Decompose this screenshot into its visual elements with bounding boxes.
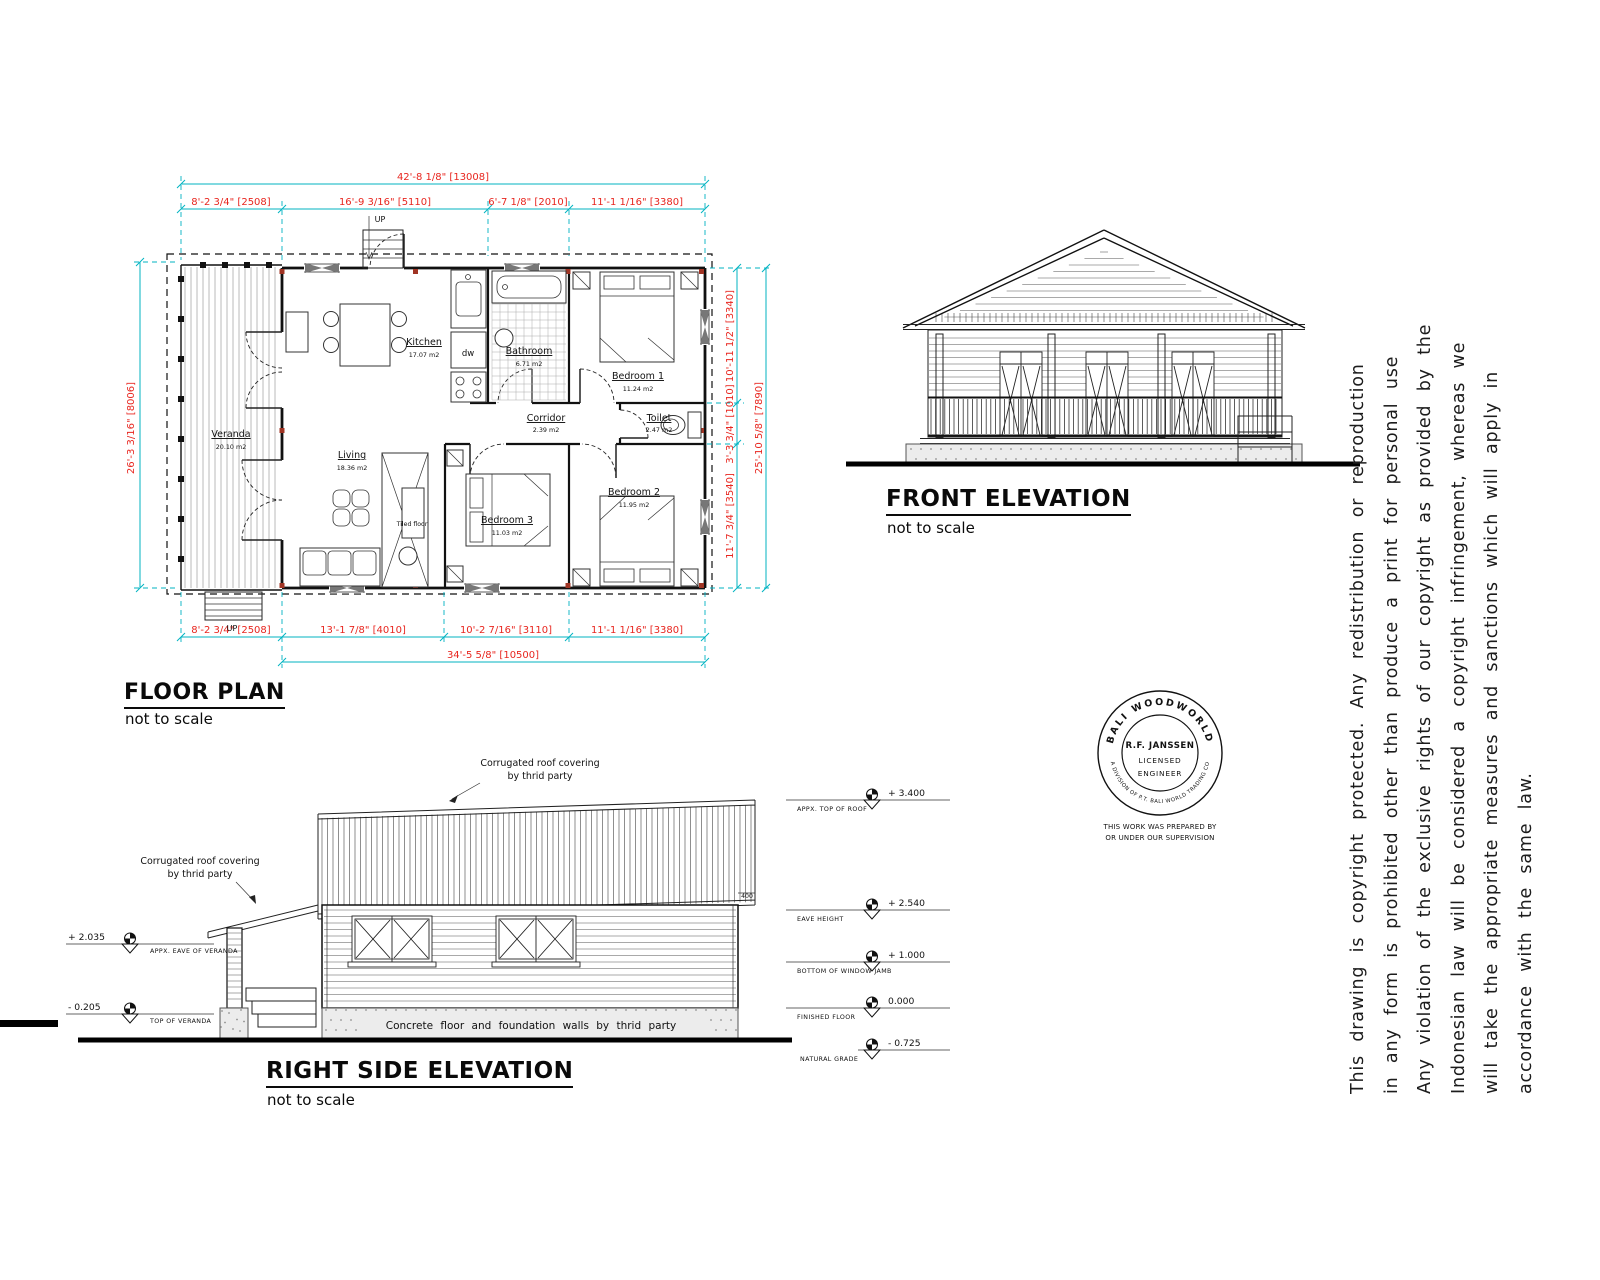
stipple-dot bbox=[415, 1009, 417, 1011]
stipple-dot bbox=[1135, 458, 1137, 460]
stipple-dot bbox=[940, 448, 942, 450]
chair bbox=[392, 312, 407, 327]
stipple-dot bbox=[1035, 458, 1037, 460]
stipple-dot bbox=[365, 1009, 367, 1011]
sofa bbox=[300, 548, 380, 586]
deco-line bbox=[872, 789, 878, 795]
deco-line bbox=[867, 905, 873, 911]
stipple-dot bbox=[1245, 458, 1247, 460]
stipple-dot bbox=[1040, 448, 1042, 450]
stamp-engineer: ENGINEER bbox=[1138, 769, 1183, 778]
stipple-dot bbox=[1075, 458, 1077, 460]
stipple-dot bbox=[525, 1009, 527, 1011]
level-value: - 0.725 bbox=[888, 1038, 921, 1049]
deco-line bbox=[125, 1009, 131, 1015]
stipple-dot bbox=[565, 1009, 567, 1011]
stamp-arc-bottom-text: A DIVISION OF P.T. BALI WORLD TRADING CO bbox=[1109, 761, 1211, 805]
roof-note-line2: by thrid party bbox=[507, 771, 572, 782]
eave-blocking bbox=[936, 313, 1272, 322]
stipple-dot bbox=[1010, 448, 1012, 450]
level-label: NATURAL GRADE bbox=[800, 1056, 858, 1063]
stipple-dot bbox=[224, 1022, 226, 1024]
stipple-dot bbox=[705, 1009, 707, 1011]
deco-line bbox=[867, 957, 873, 963]
stipple-dot bbox=[221, 1010, 223, 1012]
front-door-1 bbox=[1000, 352, 1042, 437]
stove bbox=[451, 372, 486, 402]
post-foundation bbox=[220, 1008, 248, 1038]
stipple-dot bbox=[325, 1009, 327, 1011]
veranda-post bbox=[227, 928, 242, 1008]
dim-top-seg3: 6'-7 1/8" [2010] bbox=[488, 197, 567, 208]
bathroom-fixtures bbox=[492, 271, 566, 400]
copyright-line: accordance with the same law. bbox=[1510, 319, 1544, 1094]
coffee-table bbox=[352, 490, 369, 507]
stipple-dot bbox=[1185, 458, 1187, 460]
stipple-dot bbox=[595, 1009, 597, 1011]
dim-top-overall: 42'-8 1/8" [13008] bbox=[397, 172, 489, 183]
stipple-dot bbox=[395, 1009, 397, 1011]
dim-top-seg1: 8'-2 3/4" [2508] bbox=[191, 197, 270, 208]
stipple-dot bbox=[1025, 458, 1027, 460]
room-living-area: 18.36 m2 bbox=[337, 464, 368, 472]
stipple-dot bbox=[980, 448, 982, 450]
stamp-note-line2: OR UNDER OUR SUPERVISION bbox=[1105, 834, 1214, 842]
eave-overhang-dim: 400 bbox=[741, 893, 753, 900]
dim-right-seg1: 10'-11 1/2" [3340] bbox=[725, 290, 736, 382]
room-bedroom3: Bedroom 3 bbox=[481, 515, 533, 526]
room-bedroom1-area: 11.24 m2 bbox=[623, 385, 654, 393]
room-toilet-area: 2.47 m2 bbox=[646, 426, 673, 434]
stipple-dot bbox=[330, 1019, 332, 1021]
stipple-dot bbox=[1095, 458, 1097, 460]
stipple-dot bbox=[735, 1029, 737, 1031]
stipple-dot bbox=[425, 1009, 427, 1011]
stipple-dot bbox=[965, 458, 967, 460]
deco-line bbox=[867, 1045, 873, 1051]
dim-bottom-seg4: 11'-1 1/16" [3380] bbox=[591, 625, 683, 636]
level-label: APPX. TOP OF ROOF bbox=[797, 806, 867, 813]
stipple-dot bbox=[1060, 448, 1062, 450]
room-bathroom-area: 6.71 m2 bbox=[516, 360, 543, 368]
stipple-dot bbox=[1205, 458, 1207, 460]
stipple-dot bbox=[955, 458, 957, 460]
level-marker bbox=[122, 1003, 138, 1023]
stipple-dot bbox=[675, 1009, 677, 1011]
stipple-dot bbox=[375, 1009, 377, 1011]
veranda-posts bbox=[178, 262, 272, 562]
stipple-dot bbox=[505, 1009, 507, 1011]
stamp-name: R.F. JANSSEN bbox=[1125, 741, 1194, 751]
stipple-dot bbox=[910, 448, 912, 450]
stipple-dot bbox=[725, 1029, 727, 1031]
stipple-dot bbox=[335, 1009, 337, 1011]
dim-bottom-overall: 34'-5 5/8" [10500] bbox=[447, 650, 539, 661]
side-window-2 bbox=[492, 916, 580, 967]
stipple-dot bbox=[645, 1009, 647, 1011]
stipple-dot bbox=[1170, 448, 1172, 450]
stipple-dot bbox=[1105, 458, 1107, 460]
up-label-bottom: UP bbox=[227, 624, 238, 633]
stipple-dot bbox=[930, 448, 932, 450]
stipple-dot bbox=[545, 1009, 547, 1011]
coffee-table bbox=[333, 509, 350, 526]
stipple-dot bbox=[635, 1009, 637, 1011]
level-value: + 2.035 bbox=[68, 932, 105, 943]
dining-table bbox=[340, 304, 390, 366]
stipple-dot bbox=[945, 458, 947, 460]
stipple-dot bbox=[655, 1009, 657, 1011]
room-toilet: Toilet bbox=[646, 413, 672, 424]
bedroom2-furniture bbox=[573, 496, 698, 586]
deco-line bbox=[867, 1003, 873, 1009]
stipple-dot bbox=[605, 1009, 607, 1011]
stipple-dot bbox=[1080, 448, 1082, 450]
stipple-dot bbox=[243, 1021, 245, 1023]
stipple-dot bbox=[990, 448, 992, 450]
stipple-dot bbox=[1115, 458, 1117, 460]
stipple-dot bbox=[1255, 458, 1257, 460]
room-bedroom3-area: 11.03 m2 bbox=[492, 529, 523, 537]
veranda-roof-note-line2: by thrid party bbox=[167, 869, 232, 880]
stipple-dot bbox=[935, 458, 937, 460]
window-kitchen bbox=[304, 263, 340, 274]
stipple-dot bbox=[585, 1009, 587, 1011]
grade-bar-left-margin bbox=[0, 1020, 58, 1027]
stipple-dot bbox=[720, 1019, 722, 1021]
stipple-dot bbox=[1260, 448, 1262, 450]
room-corridor: Corridor bbox=[527, 413, 566, 424]
stipple-dot bbox=[1155, 458, 1157, 460]
stipple-dot bbox=[1165, 458, 1167, 460]
veranda-edge bbox=[181, 265, 282, 590]
room-veranda: Veranda bbox=[211, 429, 250, 440]
level-value: 0.000 bbox=[888, 996, 914, 1007]
side-steps bbox=[246, 988, 316, 1027]
stipple-dot bbox=[695, 1009, 697, 1011]
level-lines-right: + 3.400 APPX. TOP OF ROOF + 2.540 EAVE H… bbox=[786, 788, 950, 1063]
dim-top-seg4: 11'-1 1/16" [3380] bbox=[591, 197, 683, 208]
level-label: TOP OF VERANDA bbox=[149, 1018, 212, 1025]
stipple-dot bbox=[555, 1009, 557, 1011]
stipple-dot bbox=[730, 1019, 732, 1021]
room-veranda-area: 20.10 m2 bbox=[216, 443, 247, 451]
side-elevation: 400 Corrugated roof covering by thrid pa… bbox=[0, 758, 950, 1063]
stipple-dot bbox=[1285, 458, 1287, 460]
stipple-dot bbox=[925, 458, 927, 460]
drawing-sheet: 42'-8 1/8" [13008] 8'-2 3/4" [2508] 16'-… bbox=[0, 0, 1600, 1280]
dim-right-seg3: 11'-7 3/4" [3540] bbox=[725, 473, 736, 559]
window-bedroom2 bbox=[700, 499, 711, 535]
tv-cabinet bbox=[402, 488, 424, 538]
stipple-dot bbox=[1250, 448, 1252, 450]
stipple-dot bbox=[465, 1009, 467, 1011]
stipple-dot bbox=[950, 448, 952, 450]
stipple-dot bbox=[239, 1030, 241, 1032]
up-label-top: UP bbox=[375, 215, 386, 224]
stipple-dot bbox=[1100, 448, 1102, 450]
side-elevation-subtitle: not to scale bbox=[267, 1091, 355, 1109]
deco-line bbox=[122, 1014, 138, 1023]
stipple-dot bbox=[325, 1029, 327, 1031]
roof-note-line1: Corrugated roof covering bbox=[480, 758, 599, 769]
chair bbox=[324, 338, 339, 353]
stipple-dot bbox=[1125, 458, 1127, 460]
deco-line bbox=[864, 1050, 880, 1059]
stipple-dot bbox=[1275, 458, 1277, 460]
stipple-dot bbox=[1130, 448, 1132, 450]
room-kitchen: Kitchen bbox=[406, 337, 442, 348]
stipple-dot bbox=[1045, 458, 1047, 460]
stipple-dot bbox=[405, 1009, 407, 1011]
stipple-dot bbox=[1225, 458, 1227, 460]
stipple-dot bbox=[1150, 448, 1152, 450]
stipple-dot bbox=[1175, 458, 1177, 460]
level-marker bbox=[122, 933, 138, 953]
stipple-dot bbox=[1070, 448, 1072, 450]
dim-bottom-seg3: 10'-2 7/16" [3110] bbox=[460, 625, 552, 636]
washbasin bbox=[495, 329, 513, 347]
level-marker bbox=[864, 899, 880, 919]
leader-arrowhead bbox=[449, 795, 458, 803]
stipple-dot bbox=[445, 1009, 447, 1011]
deco-line bbox=[864, 910, 880, 919]
stipple-dot bbox=[1220, 448, 1222, 450]
stipple-dot bbox=[355, 1029, 357, 1031]
dim-right-seg2: 3'-3 3/4" [1010] bbox=[725, 384, 736, 463]
room-kitchen-area: 17.07 m2 bbox=[409, 351, 440, 359]
front-elevation-title: FRONT ELEVATION bbox=[886, 486, 1131, 516]
dishwasher-label: dw bbox=[462, 349, 474, 359]
level-marker bbox=[864, 1039, 880, 1059]
stamp-note-line1: THIS WORK WAS PREPARED BY bbox=[1102, 823, 1217, 831]
deco-line bbox=[872, 1039, 878, 1045]
stipple-dot bbox=[228, 1012, 230, 1014]
stipple-dot bbox=[1110, 448, 1112, 450]
stipple-dot bbox=[615, 1009, 617, 1011]
stamp-outer-circle bbox=[1098, 691, 1222, 815]
stipple-dot bbox=[665, 1009, 667, 1011]
room-bedroom2: Bedroom 2 bbox=[608, 487, 660, 498]
side-window-1 bbox=[348, 916, 436, 967]
stipple-dot bbox=[350, 1019, 352, 1021]
stipple-dot bbox=[340, 1019, 342, 1021]
stipple-dot bbox=[232, 1028, 234, 1030]
kitchen-fixtures: dw bbox=[286, 270, 486, 402]
window-bedroom1 bbox=[700, 309, 711, 345]
deco-line bbox=[125, 939, 131, 945]
foundation-note: Concrete floor and foundation walls by t… bbox=[386, 1020, 676, 1032]
stamp-inner-circle bbox=[1122, 715, 1198, 791]
stipple-dot bbox=[1015, 458, 1017, 460]
deco-line bbox=[867, 795, 873, 801]
stipple-dot bbox=[1265, 458, 1267, 460]
stipple-dot bbox=[975, 458, 977, 460]
stipple-dot bbox=[335, 1029, 337, 1031]
level-lines-left: + 2.035 APPX. EAVE OF VERANDA - 0.205 TO… bbox=[66, 932, 238, 1025]
stipple-dot bbox=[515, 1009, 517, 1011]
front-elevation-subtitle: not to scale bbox=[887, 519, 975, 537]
stipple-dot bbox=[1020, 448, 1022, 450]
stipple-dot bbox=[1200, 448, 1202, 450]
window-bedroom3 bbox=[464, 583, 500, 594]
level-label: EAVE HEIGHT bbox=[797, 916, 844, 923]
deco-line bbox=[872, 951, 878, 957]
stipple-dot bbox=[715, 1029, 717, 1031]
room-living: Living bbox=[338, 450, 366, 461]
stipple-dot bbox=[920, 448, 922, 450]
stipple-dot bbox=[1120, 448, 1122, 450]
stipple-dot bbox=[1145, 458, 1147, 460]
bedroom1-furniture bbox=[573, 272, 698, 362]
stamp-arc-bottom-label: A DIVISION OF P.T. BALI WORLD TRADING CO bbox=[1109, 761, 1211, 805]
copyright-line: in any form is prohibited other than pro… bbox=[1376, 319, 1410, 1094]
stipple-dot bbox=[1235, 458, 1237, 460]
deco-line bbox=[130, 933, 136, 939]
floor-plan-title: FLOOR PLAN bbox=[124, 680, 285, 709]
copyright-line: Any violation of the exclusive rights of… bbox=[1409, 319, 1443, 1094]
stipple-dot bbox=[625, 1009, 627, 1011]
stipple-dot bbox=[735, 1009, 737, 1011]
room-corridor-area: 2.39 m2 bbox=[533, 426, 560, 434]
veranda-roof-note-line1: Corrugated roof covering bbox=[140, 856, 259, 867]
veranda-roof bbox=[208, 905, 318, 938]
stipple-dot bbox=[1195, 458, 1197, 460]
stipple-dot bbox=[1160, 448, 1162, 450]
eave-fascia bbox=[903, 325, 1305, 330]
stipple-dot bbox=[1215, 458, 1217, 460]
stipple-dot bbox=[495, 1009, 497, 1011]
stipple-dot bbox=[236, 1019, 238, 1021]
living-furniture bbox=[300, 453, 428, 587]
stipple-dot bbox=[485, 1009, 487, 1011]
dim-right-overall: 25'-10 5/8" [7890] bbox=[754, 382, 765, 474]
stipple-dot bbox=[1090, 448, 1092, 450]
dim-bottom-seg2: 13'-1 7/8" [4010] bbox=[320, 625, 406, 636]
tiled-floor-label: Tiled floor bbox=[396, 521, 428, 528]
roof-corrugation bbox=[322, 805, 751, 915]
floor-plan: 42'-8 1/8" [13008] 8'-2 3/4" [2508] 16'-… bbox=[126, 172, 772, 668]
dim-left: 26'-3 3/16" [8006] bbox=[126, 382, 137, 474]
stipple-dot bbox=[725, 1009, 727, 1011]
chair bbox=[324, 312, 339, 327]
deco-line bbox=[864, 1008, 880, 1017]
deco-line bbox=[872, 899, 878, 905]
engineer-stamp: BALI WOODWORLD A DIVISION OF P.T. BALI W… bbox=[1098, 691, 1222, 842]
side-table bbox=[399, 547, 417, 565]
stipple-dot bbox=[385, 1009, 387, 1011]
stipple-dot bbox=[1030, 448, 1032, 450]
stipple-dot bbox=[1005, 458, 1007, 460]
dim-top-seg2: 16'-9 3/16" [5110] bbox=[339, 197, 431, 208]
side-elevation-title: RIGHT SIDE ELEVATION bbox=[266, 1058, 573, 1088]
level-value: - 0.205 bbox=[68, 1002, 101, 1013]
stipple-dot bbox=[995, 458, 997, 460]
stipple-dot bbox=[1190, 448, 1192, 450]
chair bbox=[392, 338, 407, 353]
stipple-dot bbox=[1055, 458, 1057, 460]
stipple-dot bbox=[345, 1009, 347, 1011]
copyright-line: This drawing is copyright protected. Any… bbox=[1342, 319, 1376, 1094]
deck-edge bbox=[920, 439, 1290, 444]
stipple-dot bbox=[685, 1009, 687, 1011]
stipple-dot bbox=[475, 1009, 477, 1011]
stipple-dot bbox=[985, 458, 987, 460]
stipple-dot bbox=[220, 1026, 222, 1028]
stipple-dot bbox=[435, 1009, 437, 1011]
stipple-dot bbox=[1140, 448, 1142, 450]
wc-tank bbox=[688, 412, 701, 438]
floor-plan-subtitle: not to scale bbox=[125, 710, 213, 728]
stipple-dot bbox=[355, 1009, 357, 1011]
deco-line bbox=[872, 997, 878, 1003]
level-marker bbox=[864, 997, 880, 1017]
stipple-dot bbox=[1065, 458, 1067, 460]
stipple-dot bbox=[240, 1009, 242, 1011]
stipple-dot bbox=[710, 1019, 712, 1021]
stipple-dot bbox=[455, 1009, 457, 1011]
level-label: FINISHED FLOOR bbox=[797, 1014, 856, 1021]
stipple-dot bbox=[1180, 448, 1182, 450]
front-elevation bbox=[846, 230, 1360, 464]
stipple-dot bbox=[1240, 448, 1242, 450]
stipple-dot bbox=[1050, 448, 1052, 450]
stamp-licensed: LICENSED bbox=[1138, 756, 1181, 765]
deco-line bbox=[122, 944, 138, 953]
copyright-notice: This drawing is copyright protected. Any… bbox=[1342, 319, 1543, 1094]
deco-line bbox=[130, 1003, 136, 1009]
level-value: + 1.000 bbox=[888, 950, 925, 961]
stipple-dot bbox=[715, 1009, 717, 1011]
level-value: + 3.400 bbox=[888, 788, 925, 799]
level-value: + 2.540 bbox=[888, 898, 925, 909]
room-bedroom2-area: 11.95 m2 bbox=[619, 501, 650, 509]
stipple-dot bbox=[915, 458, 917, 460]
stipple-dot bbox=[1000, 448, 1002, 450]
stipple-dot bbox=[1085, 458, 1087, 460]
stipple-dot bbox=[345, 1029, 347, 1031]
room-bathroom: Bathroom bbox=[506, 346, 553, 357]
stipple-dot bbox=[1210, 448, 1212, 450]
copyright-line: will take the appropriate measures and s… bbox=[1476, 319, 1510, 1094]
room-bedroom1: Bedroom 1 bbox=[612, 371, 664, 382]
stipple-dot bbox=[960, 448, 962, 450]
copyright-line: Indonesian law will be considered a copy… bbox=[1443, 319, 1477, 1094]
coffee-table bbox=[333, 490, 350, 507]
stipple-dot bbox=[1270, 448, 1272, 450]
kitchen-cabinet bbox=[286, 312, 308, 352]
stipple-dot bbox=[1295, 458, 1297, 460]
coffee-table bbox=[352, 509, 369, 526]
stipple-dot bbox=[970, 448, 972, 450]
stipple-dot bbox=[535, 1009, 537, 1011]
level-label: BOTTOM OF WINDOW JAMB bbox=[797, 968, 892, 975]
level-label: APPX. EAVE OF VERANDA bbox=[150, 948, 238, 955]
stipple-dot bbox=[1280, 448, 1282, 450]
stipple-dot bbox=[575, 1009, 577, 1011]
stipple-dot bbox=[1230, 448, 1232, 450]
